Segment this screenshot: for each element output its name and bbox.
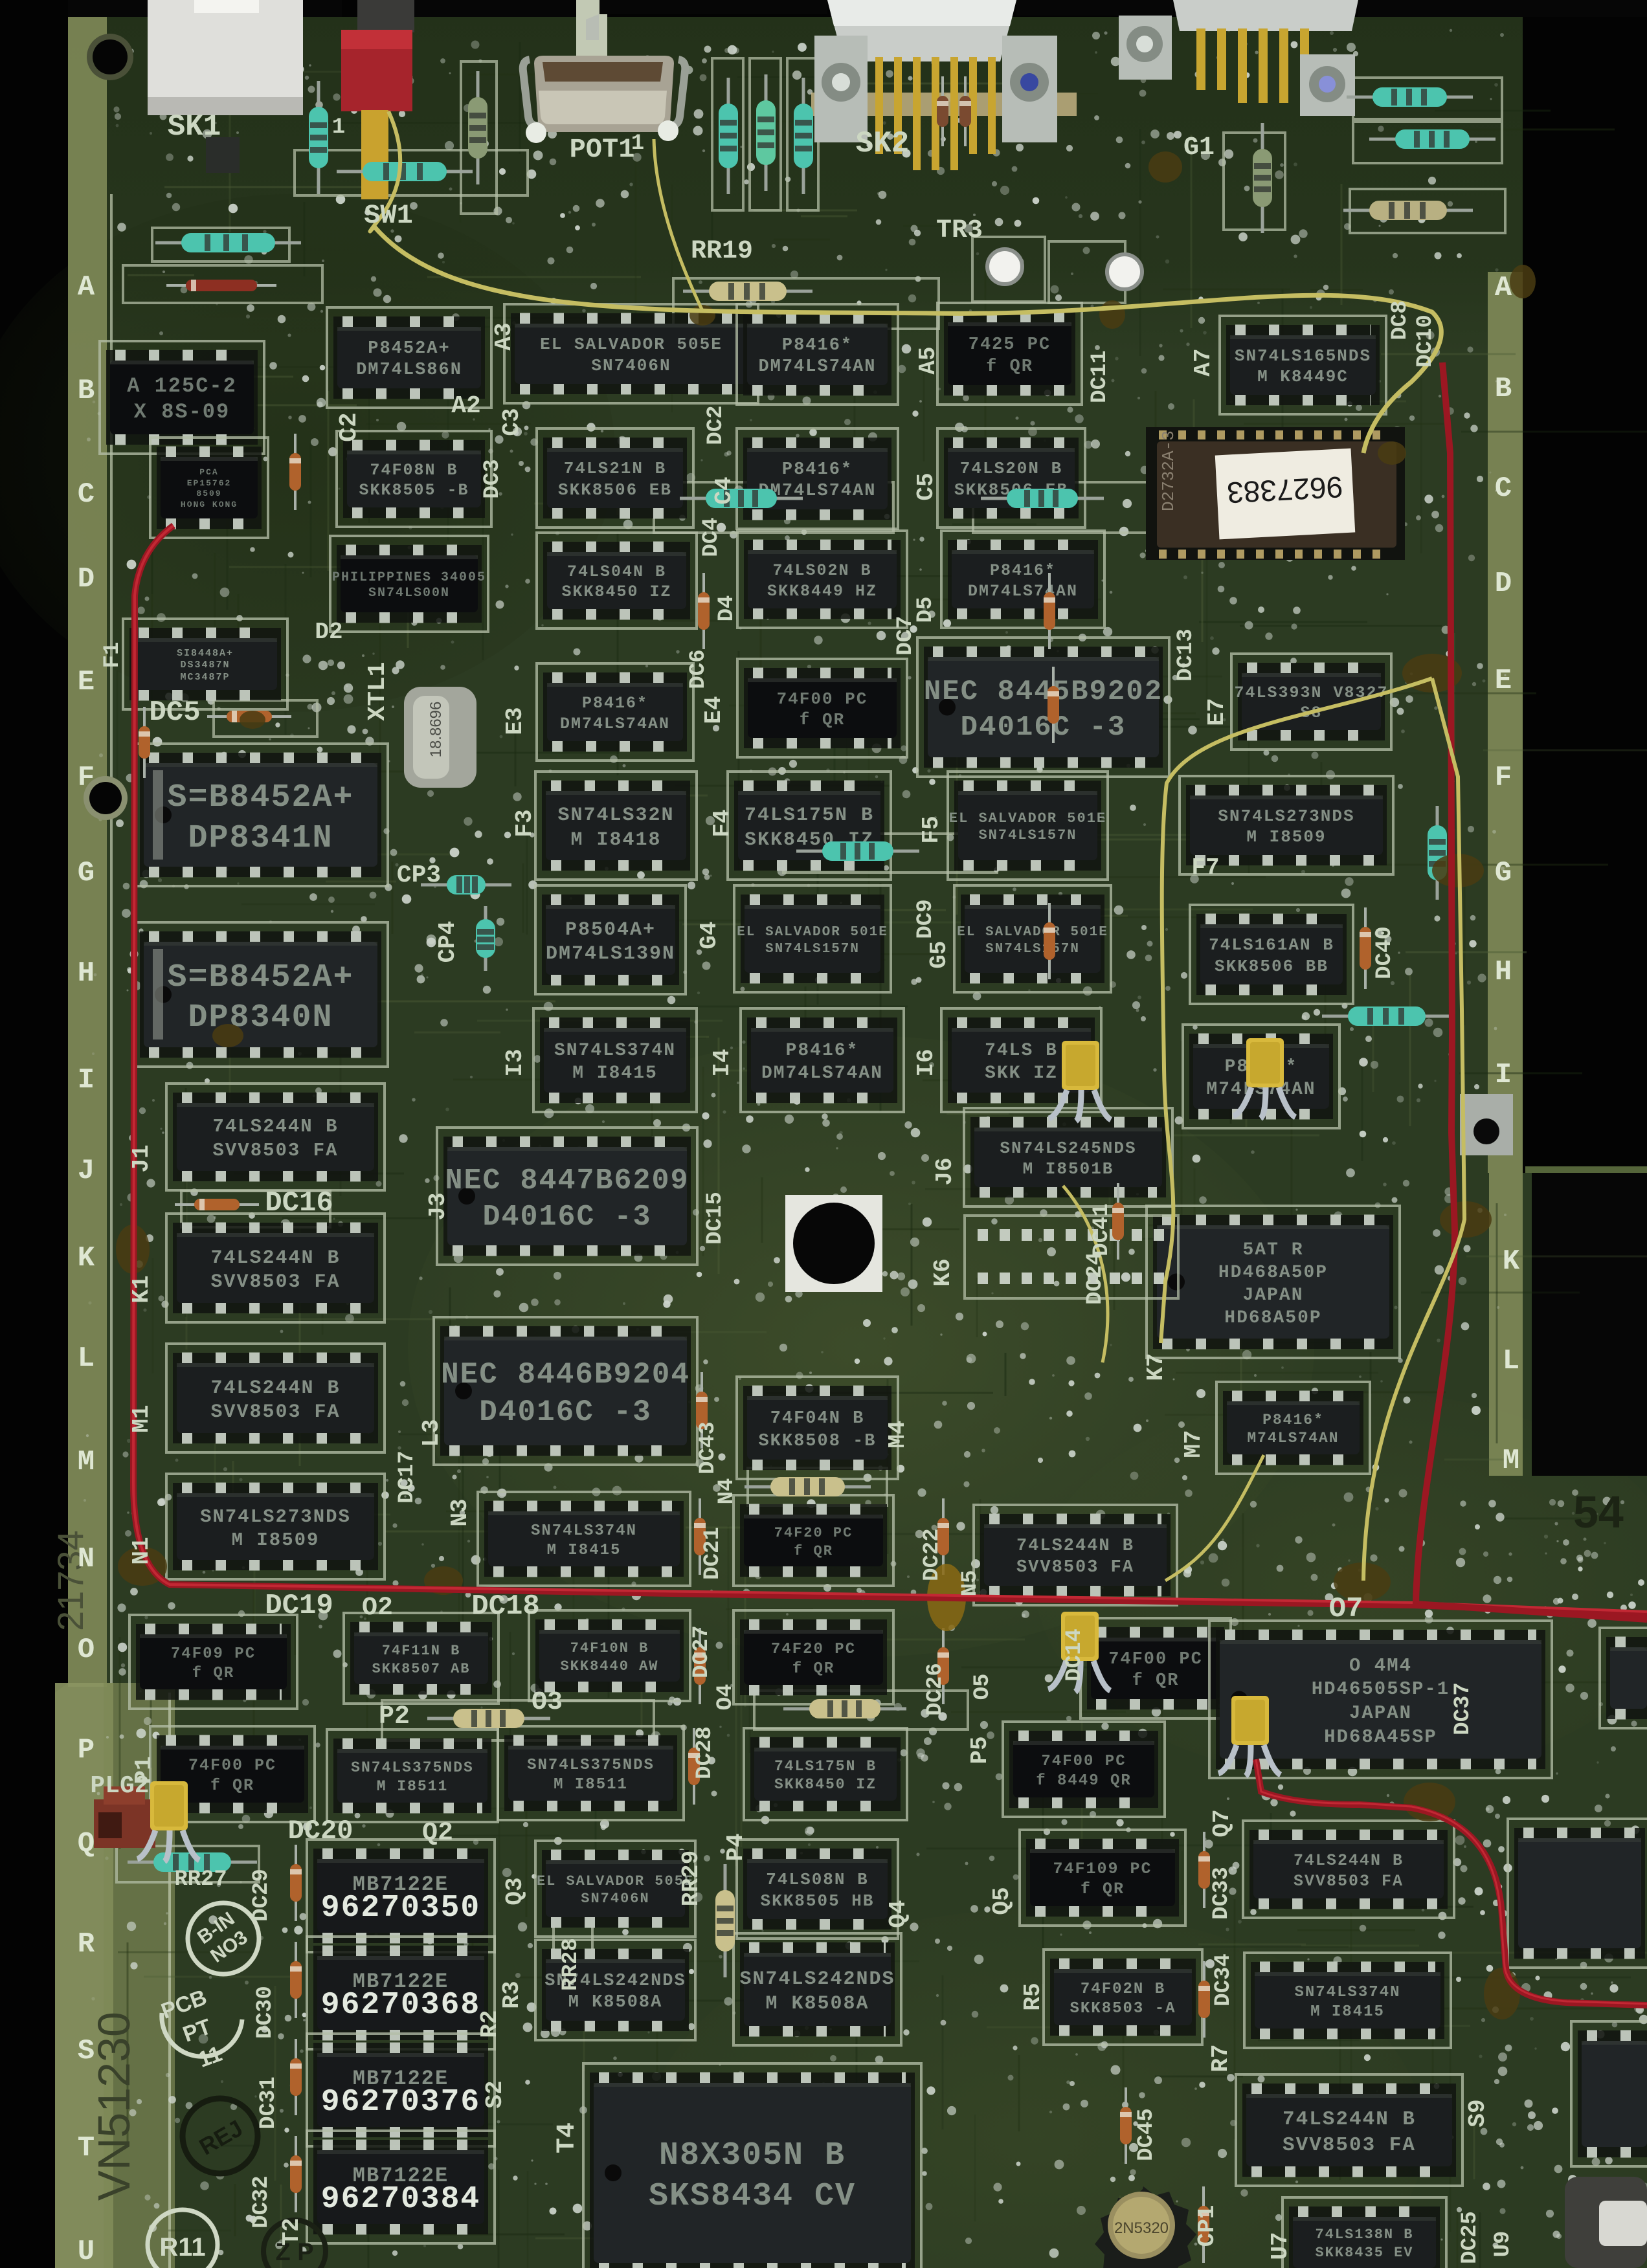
svg-text:DC29: DC29: [249, 1869, 274, 1922]
svg-text:I3: I3: [502, 1049, 528, 1076]
svg-text:DC34: DC34: [1211, 1953, 1236, 2007]
svg-text:T2: T2: [278, 2218, 305, 2245]
svg-text:SN74LS157N: SN74LS157N: [985, 942, 1080, 957]
svg-text:F3: F3: [511, 809, 538, 837]
svg-text:A: A: [78, 271, 95, 304]
svg-text:DC20: DC20: [288, 1816, 353, 1847]
svg-text:DP8341N: DP8341N: [188, 820, 333, 857]
svg-text:POT1: POT1: [570, 134, 635, 165]
svg-text:SN7406N: SN7406N: [591, 356, 671, 375]
svg-text:P4: P4: [723, 1833, 749, 1861]
svg-text:74LS244N B: 74LS244N B: [212, 1116, 338, 1137]
svg-text:74F00 PC: 74F00 PC: [1108, 1650, 1203, 1669]
svg-text:XTL1: XTL1: [364, 661, 392, 720]
svg-text:74F02N B: 74F02N B: [1081, 1981, 1165, 1998]
svg-text:E: E: [78, 666, 95, 698]
svg-text:SN74LS273NDS: SN74LS273NDS: [200, 1506, 351, 1528]
svg-text:SK1: SK1: [168, 110, 221, 144]
svg-text:M K8508A: M K8508A: [568, 1993, 663, 2012]
svg-text:F5: F5: [918, 816, 945, 843]
svg-text:M K8508A: M K8508A: [765, 1993, 869, 2015]
svg-text:DC13: DC13: [1174, 628, 1198, 682]
svg-text:C: C: [78, 478, 95, 511]
svg-text:S: S: [78, 2035, 95, 2067]
svg-text:M K8449C: M K8449C: [1257, 367, 1349, 386]
svg-text:74LS20N B: 74LS20N B: [960, 459, 1062, 478]
svg-text:SKK8440 AW: SKK8440 AW: [560, 1658, 658, 1674]
svg-text:SVV8503 FA: SVV8503 FA: [1294, 1872, 1404, 1891]
svg-text:SKK8503 -A: SKK8503 -A: [1070, 2000, 1176, 2018]
svg-text:DC21: DC21: [700, 1527, 725, 1580]
svg-text:SN74LS242NDS: SN74LS242NDS: [739, 1968, 895, 1990]
svg-text:S2: S2: [482, 2080, 508, 2108]
svg-text:E7: E7: [1204, 698, 1230, 726]
svg-text:f QR: f QR: [192, 1665, 235, 1682]
svg-text:M74LS74AN: M74LS74AN: [1247, 1430, 1339, 1447]
svg-text:74LS04N B: 74LS04N B: [567, 562, 666, 581]
svg-text:F: F: [1495, 762, 1512, 794]
svg-text:DC9: DC9: [913, 899, 938, 939]
svg-text:J6: J6: [932, 1157, 958, 1185]
svg-text:O5: O5: [970, 1674, 995, 1700]
svg-text:J1: J1: [128, 1144, 155, 1172]
svg-text:DC8: DC8: [1388, 300, 1413, 340]
svg-text:S=B8452A+: S=B8452A+: [167, 779, 353, 816]
svg-text:f QR: f QR: [792, 1660, 835, 1678]
svg-text:DC4: DC4: [699, 517, 724, 557]
svg-text:DC10: DC10: [1413, 315, 1438, 368]
svg-text:T: T: [78, 2132, 95, 2164]
svg-text:Q3: Q3: [502, 1877, 528, 1905]
svg-text:74LS08N B: 74LS08N B: [766, 1870, 868, 1889]
svg-text:9627383: 9627383: [1226, 470, 1344, 509]
svg-text:R2: R2: [476, 2010, 503, 2038]
svg-text:DC15: DC15: [703, 1192, 728, 1245]
svg-text:SN74LS375NDS: SN74LS375NDS: [527, 1757, 655, 1774]
svg-text:N8X305N B: N8X305N B: [659, 2137, 846, 2174]
svg-text:M: M: [1503, 1445, 1519, 1477]
svg-text:I6: I6: [913, 1049, 939, 1076]
svg-text:DC6: DC6: [686, 649, 711, 689]
svg-text:DC25: DC25: [1458, 2211, 1483, 2264]
svg-text:SKK8435 EV: SKK8435 EV: [1315, 2245, 1413, 2261]
svg-text:M I8509: M I8509: [1246, 827, 1326, 847]
svg-text:A7: A7: [1190, 348, 1216, 376]
svg-text:DC19: DC19: [265, 1590, 333, 1622]
svg-text:NEC 8446B9204: NEC 8446B9204: [441, 1358, 690, 1392]
svg-text:MC3487P: MC3487P: [180, 672, 230, 683]
svg-text:SKK8506 EB: SKK8506 EB: [558, 480, 672, 500]
svg-text:S=B8452A+: S=B8452A+: [167, 959, 353, 996]
svg-text:N3: N3: [447, 1498, 473, 1526]
svg-text:74F00 PC: 74F00 PC: [777, 689, 868, 709]
svg-text:74F00 PC: 74F00 PC: [188, 1756, 276, 1775]
svg-text:M I8511: M I8511: [377, 1778, 449, 1795]
svg-text:SN74LS375NDS: SN74LS375NDS: [351, 1759, 474, 1776]
svg-text:SN74LS273NDS: SN74LS273NDS: [1218, 806, 1354, 826]
svg-text:74LS244N B: 74LS244N B: [1016, 1537, 1134, 1556]
svg-text:A 125C-2: A 125C-2: [127, 374, 237, 398]
svg-text:P8504A+: P8504A+: [565, 919, 656, 941]
svg-text:P8452A+: P8452A+: [368, 339, 450, 359]
svg-text:EL SALVADOR 501E: EL SALVADOR 501E: [737, 925, 888, 940]
svg-text:DC11: DC11: [1088, 350, 1112, 403]
svg-text:RR29: RR29: [678, 1851, 704, 1906]
svg-text:O: O: [78, 1634, 95, 1666]
svg-text:T4: T4: [553, 2122, 582, 2153]
svg-text:U9: U9: [1491, 2231, 1516, 2258]
svg-text:RR19: RR19: [691, 237, 753, 266]
svg-text:O3: O3: [532, 1688, 563, 1717]
svg-text:DC3: DC3: [480, 459, 505, 498]
svg-text:B: B: [78, 375, 95, 407]
svg-text:K7: K7: [1143, 1353, 1169, 1381]
svg-text:HD68A50P: HD68A50P: [1224, 1308, 1321, 1328]
svg-text:RR28: RR28: [559, 1938, 583, 1991]
svg-text:E: E: [1495, 665, 1512, 697]
svg-text:EL SALVADOR 505E: EL SALVADOR 505E: [540, 335, 723, 354]
svg-text:A: A: [1495, 272, 1512, 304]
svg-text:DC30: DC30: [253, 1986, 278, 2039]
svg-text:F: F: [78, 762, 95, 794]
svg-text:2N5320: 2N5320: [1114, 2219, 1169, 2237]
svg-text:A3: A3: [491, 322, 517, 350]
svg-text:Q4: Q4: [885, 1900, 912, 1928]
svg-text:D4016C -3: D4016C -3: [482, 1201, 651, 1234]
svg-text:SKK8508 -B: SKK8508 -B: [758, 1432, 876, 1451]
svg-text:DC33: DC33: [1209, 1867, 1234, 1920]
svg-text:C3: C3: [499, 408, 525, 436]
svg-text:U: U: [78, 2236, 95, 2268]
svg-text:I: I: [78, 1064, 95, 1096]
svg-text:L: L: [1503, 1345, 1519, 1377]
svg-text:8509: 8509: [196, 489, 221, 498]
svg-text:EL SALVADOR 501E: EL SALVADOR 501E: [949, 810, 1106, 827]
svg-text:N: N: [78, 1543, 95, 1575]
svg-text:f QR: f QR: [1081, 1880, 1125, 1898]
svg-text:O4: O4: [713, 1684, 738, 1711]
svg-text:SVV8503 FA: SVV8503 FA: [210, 1271, 340, 1293]
svg-text:74LS138N B: 74LS138N B: [1315, 2227, 1413, 2243]
svg-text:K: K: [1503, 1245, 1520, 1278]
svg-text:f QR: f QR: [800, 710, 845, 729]
svg-text:HD46505SP-1: HD46505SP-1: [1312, 1678, 1450, 1700]
svg-text:DM74LS86N: DM74LS86N: [356, 361, 462, 380]
svg-text:DC41: DC41: [1090, 1203, 1114, 1256]
svg-text:74F20 PC: 74F20 PC: [774, 1525, 853, 1541]
svg-text:SKK8505 -B: SKK8505 -B: [359, 481, 469, 500]
svg-text:f QR: f QR: [1132, 1671, 1180, 1691]
svg-text:R3: R3: [499, 1981, 525, 2008]
svg-text:SKK8449 HZ: SKK8449 HZ: [767, 582, 877, 601]
svg-text:DC31: DC31: [256, 2076, 281, 2129]
svg-text:DC32: DC32: [249, 2175, 274, 2229]
svg-text:A5: A5: [915, 346, 941, 374]
svg-text:DC37: DC37: [1451, 1682, 1475, 1735]
svg-text:74LS244N B: 74LS244N B: [210, 1377, 340, 1399]
svg-text:I: I: [1495, 1059, 1512, 1091]
svg-text:D2732A-3: D2732A-3: [1159, 430, 1178, 511]
svg-text:M I8509: M I8509: [232, 1529, 320, 1551]
svg-text:P8416*: P8416*: [782, 336, 853, 355]
svg-text:DC22: DC22: [920, 1528, 945, 1581]
svg-text:P8416*: P8416*: [990, 561, 1056, 580]
svg-text:J: J: [78, 1155, 95, 1187]
svg-text:EP15762: EP15762: [187, 478, 232, 488]
svg-text:EL SALVADOR 505E: EL SALVADOR 505E: [537, 1873, 694, 1889]
svg-text:C: C: [1495, 472, 1512, 505]
svg-text:f QR: f QR: [794, 1543, 833, 1559]
svg-text:M I8415: M I8415: [547, 1542, 622, 1559]
svg-text:74LS21N B: 74LS21N B: [564, 459, 666, 478]
svg-text:C4: C4: [711, 476, 737, 504]
svg-text:M: M: [78, 1446, 95, 1478]
svg-text:O7: O7: [1329, 1593, 1363, 1625]
svg-text:18.8696: 18.8696: [427, 702, 445, 758]
svg-text:SN74LS165NDS: SN74LS165NDS: [1235, 346, 1371, 366]
svg-text:DC16: DC16: [265, 1187, 333, 1219]
svg-text:F4: F4: [709, 809, 735, 837]
svg-text:S9: S9: [1464, 2099, 1491, 2127]
svg-text:PLG2: PLG2: [90, 1772, 149, 1800]
svg-text:DC18: DC18: [471, 1590, 540, 1623]
svg-text:Q: Q: [78, 1828, 95, 1860]
svg-text:74F04N B: 74F04N B: [770, 1409, 865, 1429]
svg-text:O 4M4: O 4M4: [1349, 1655, 1412, 1676]
svg-text:74F08N B: 74F08N B: [370, 461, 458, 480]
svg-text:R7: R7: [1207, 2044, 1234, 2072]
svg-text:DC17: DC17: [395, 1451, 420, 1504]
svg-text:I4: I4: [709, 1049, 735, 1076]
svg-text:Q5: Q5: [989, 1887, 1015, 1915]
svg-text:P5: P5: [967, 1736, 993, 1764]
svg-text:74LS244N B: 74LS244N B: [1283, 2108, 1416, 2131]
svg-text:E4: E4: [700, 696, 727, 724]
svg-text:SKK8450 IZ: SKK8450 IZ: [774, 1776, 877, 1793]
svg-text:DC5: DC5: [149, 696, 200, 729]
svg-text:M1: M1: [128, 1405, 155, 1432]
svg-text:CP1: CP1: [1194, 2205, 1220, 2247]
svg-text:TR3: TR3: [936, 216, 983, 245]
svg-text:X 8S-09: X 8S-09: [134, 400, 230, 424]
svg-text:74LS175N B: 74LS175N B: [774, 1758, 877, 1775]
svg-text:96270350: 96270350: [321, 1891, 480, 1926]
svg-text:DC14: DC14: [1062, 1629, 1087, 1682]
svg-text:D4: D4: [715, 595, 739, 622]
svg-text:74LS175N B: 74LS175N B: [745, 805, 874, 827]
svg-text:CP3: CP3: [397, 862, 441, 889]
svg-text:JAPAN: JAPAN: [1349, 1702, 1412, 1724]
svg-text:D2: D2: [315, 619, 342, 645]
svg-text:F7: F7: [1191, 854, 1219, 881]
svg-text:SVV8503 FA: SVV8503 FA: [210, 1401, 340, 1423]
svg-text:C2: C2: [335, 412, 363, 442]
svg-text:M I8418: M I8418: [570, 829, 661, 851]
svg-text:P8416*: P8416*: [782, 460, 853, 480]
svg-text:CP4: CP4: [434, 921, 461, 963]
svg-text:NEC 8445B9202: NEC 8445B9202: [924, 676, 1163, 708]
svg-text:74LS244N B: 74LS244N B: [210, 1247, 340, 1269]
svg-text:M7: M7: [1180, 1430, 1207, 1458]
svg-text:SN74LS00N: SN74LS00N: [368, 586, 450, 601]
svg-text:M I8415: M I8415: [572, 1063, 658, 1084]
svg-text:L: L: [78, 1342, 95, 1375]
svg-text:D: D: [78, 563, 95, 595]
svg-text:74F09 PC: 74F09 PC: [171, 1645, 256, 1663]
svg-text:A2: A2: [451, 392, 481, 420]
svg-text:SN74LS374N: SN74LS374N: [1294, 1984, 1400, 2001]
svg-text:5AT R: 5AT R: [1242, 1240, 1303, 1260]
svg-text:D4016C -3: D4016C -3: [479, 1395, 651, 1429]
svg-text:74LS B: 74LS B: [985, 1041, 1058, 1061]
svg-text:D5: D5: [913, 597, 938, 623]
svg-text:SN74LS157N: SN74LS157N: [978, 827, 1077, 843]
svg-text:K1: K1: [128, 1275, 155, 1303]
svg-text:R: R: [78, 1928, 95, 1961]
svg-text:K: K: [78, 1242, 95, 1274]
svg-text:DM74LS139N: DM74LS139N: [546, 943, 675, 965]
svg-text:DC24: DC24: [1083, 1252, 1108, 1305]
svg-text:SKK8505 HB: SKK8505 HB: [760, 1891, 874, 1911]
svg-text:DC27: DC27: [689, 1625, 714, 1678]
svg-text:96270368: 96270368: [321, 1988, 480, 2023]
svg-text:N5: N5: [958, 1570, 983, 1597]
svg-text:G: G: [78, 857, 95, 889]
svg-text:DC26: DC26: [923, 1663, 948, 1716]
svg-text:SN7406N: SN7406N: [581, 1891, 649, 1907]
svg-text:SKK IZ: SKK IZ: [985, 1063, 1058, 1084]
svg-text:1: 1: [332, 115, 345, 140]
svg-text:74F11N B: 74F11N B: [382, 1643, 461, 1659]
svg-text:NEC 8447B6209: NEC 8447B6209: [445, 1164, 689, 1197]
svg-text:SKK8506 BB: SKK8506 BB: [1215, 957, 1328, 976]
svg-text:SKK8507 AB: SKK8507 AB: [372, 1661, 470, 1677]
svg-text:PCA: PCA: [199, 467, 218, 477]
svg-text:f QR: f QR: [986, 357, 1033, 377]
svg-text:SVV8503 FA: SVV8503 FA: [1283, 2134, 1416, 2157]
svg-text:54: 54: [1573, 1487, 1624, 1537]
svg-text:M I8415: M I8415: [1310, 2003, 1385, 2021]
svg-text:SN74LS374N: SN74LS374N: [554, 1041, 676, 1061]
svg-text:SW1: SW1: [364, 200, 413, 231]
svg-text:7425 PC: 7425 PC: [969, 335, 1051, 355]
svg-text:DS3487N: DS3487N: [180, 660, 230, 671]
svg-text:74F10N B: 74F10N B: [570, 1640, 649, 1656]
svg-text:DC45: DC45: [1134, 2108, 1159, 2161]
svg-text:P: P: [78, 1734, 95, 1766]
svg-text:74LS161AN B: 74LS161AN B: [1209, 935, 1334, 955]
svg-text:SVV8503 FA: SVV8503 FA: [1016, 1558, 1134, 1577]
svg-text:J3: J3: [425, 1192, 451, 1220]
svg-text:G5: G5: [926, 940, 952, 968]
svg-text:f QR: f QR: [210, 1776, 254, 1795]
svg-text:HONG KONG: HONG KONG: [181, 500, 238, 509]
svg-text:VN51230: VN51230: [89, 2012, 139, 2201]
svg-text:K6: K6: [930, 1258, 956, 1286]
svg-text:74LS244N B: 74LS244N B: [1294, 1851, 1404, 1870]
svg-text:SKS8434 CV: SKS8434 CV: [649, 2178, 856, 2215]
svg-text:74F20 PC: 74F20 PC: [771, 1641, 856, 1658]
svg-text:DC43: DC43: [696, 1421, 721, 1474]
svg-text:DC40: DC40: [1372, 926, 1397, 979]
svg-text:EL SALVADOR 501E: EL SALVADOR 501E: [957, 925, 1108, 940]
svg-text:P8416*: P8416*: [1262, 1412, 1324, 1429]
svg-text:SN74LS157N: SN74LS157N: [765, 942, 860, 957]
svg-text:74F00 PC: 74F00 PC: [1041, 1753, 1126, 1770]
svg-text:P8416*: P8416*: [582, 694, 648, 713]
svg-text:M4: M4: [884, 1420, 911, 1448]
svg-text:DM74LS74AN: DM74LS74AN: [761, 1063, 883, 1084]
svg-text:SKK8450 IZ: SKK8450 IZ: [561, 583, 671, 601]
svg-text:DC2: DC2: [704, 405, 728, 445]
svg-text:96270376: 96270376: [321, 2085, 480, 2120]
svg-text:O2: O2: [362, 1594, 393, 1623]
svg-text:P2: P2: [379, 1702, 410, 1731]
svg-text:E3: E3: [502, 707, 528, 735]
svg-text:H: H: [78, 957, 95, 990]
svg-text:G: G: [1495, 857, 1512, 889]
svg-text:G1: G1: [1183, 133, 1215, 162]
svg-text:G4: G4: [696, 921, 723, 949]
svg-text:SK2: SK2: [856, 127, 910, 161]
svg-text:R5: R5: [1020, 1983, 1046, 2010]
svg-text:SI8448A+: SI8448A+: [177, 648, 234, 659]
svg-text:C5: C5: [913, 472, 939, 500]
svg-text:Q7: Q7: [1209, 1809, 1235, 1837]
svg-text:D4016C -3: D4016C -3: [961, 711, 1126, 744]
svg-text:N1: N1: [128, 1537, 155, 1564]
svg-text:P8416*: P8416*: [786, 1041, 859, 1061]
svg-text:L3: L3: [418, 1419, 445, 1447]
svg-text:SN74LS245NDS: SN74LS245NDS: [1000, 1139, 1136, 1158]
svg-text:RR27: RR27: [174, 1867, 227, 1892]
svg-text:JAPAN: JAPAN: [1242, 1285, 1303, 1306]
svg-text:SVV8503 FA: SVV8503 FA: [212, 1140, 338, 1161]
svg-text:96270384: 96270384: [321, 2182, 480, 2217]
svg-text:SN74LS32N: SN74LS32N: [557, 805, 674, 827]
svg-text:74LS02N B: 74LS02N B: [772, 561, 871, 580]
svg-text:N4: N4: [715, 1478, 739, 1505]
svg-text:SN74LS374N: SN74LS374N: [531, 1522, 637, 1540]
svg-text:B: B: [1495, 373, 1512, 405]
svg-text:M I8511: M I8511: [554, 1776, 628, 1794]
svg-text:74F109 PC: 74F109 PC: [1053, 1860, 1152, 1878]
svg-text:Q2: Q2: [422, 1819, 453, 1848]
svg-text:DM74LS74AN: DM74LS74AN: [758, 357, 876, 377]
svg-text:HD68A45SP: HD68A45SP: [1324, 1726, 1437, 1748]
svg-text:DM74LS74AN: DM74LS74AN: [560, 715, 670, 733]
svg-text:PHILIPPINES 34005: PHILIPPINES 34005: [332, 570, 486, 585]
svg-text:HD468A50P: HD468A50P: [1218, 1263, 1328, 1283]
svg-text:D: D: [1495, 568, 1512, 600]
svg-text:R11: R11: [159, 2233, 205, 2262]
svg-text:M I8501B: M I8501B: [1023, 1159, 1114, 1179]
svg-text:H: H: [1495, 956, 1512, 988]
svg-text:U7: U7: [1267, 2232, 1294, 2260]
svg-text:DC28: DC28: [693, 1726, 717, 1779]
svg-text:f 8449 QR: f 8449 QR: [1036, 1772, 1132, 1790]
svg-text:DP8340N: DP8340N: [188, 999, 333, 1036]
svg-text:F1: F1: [100, 642, 125, 669]
svg-text:DM74LS74AN: DM74LS74AN: [968, 582, 1078, 601]
